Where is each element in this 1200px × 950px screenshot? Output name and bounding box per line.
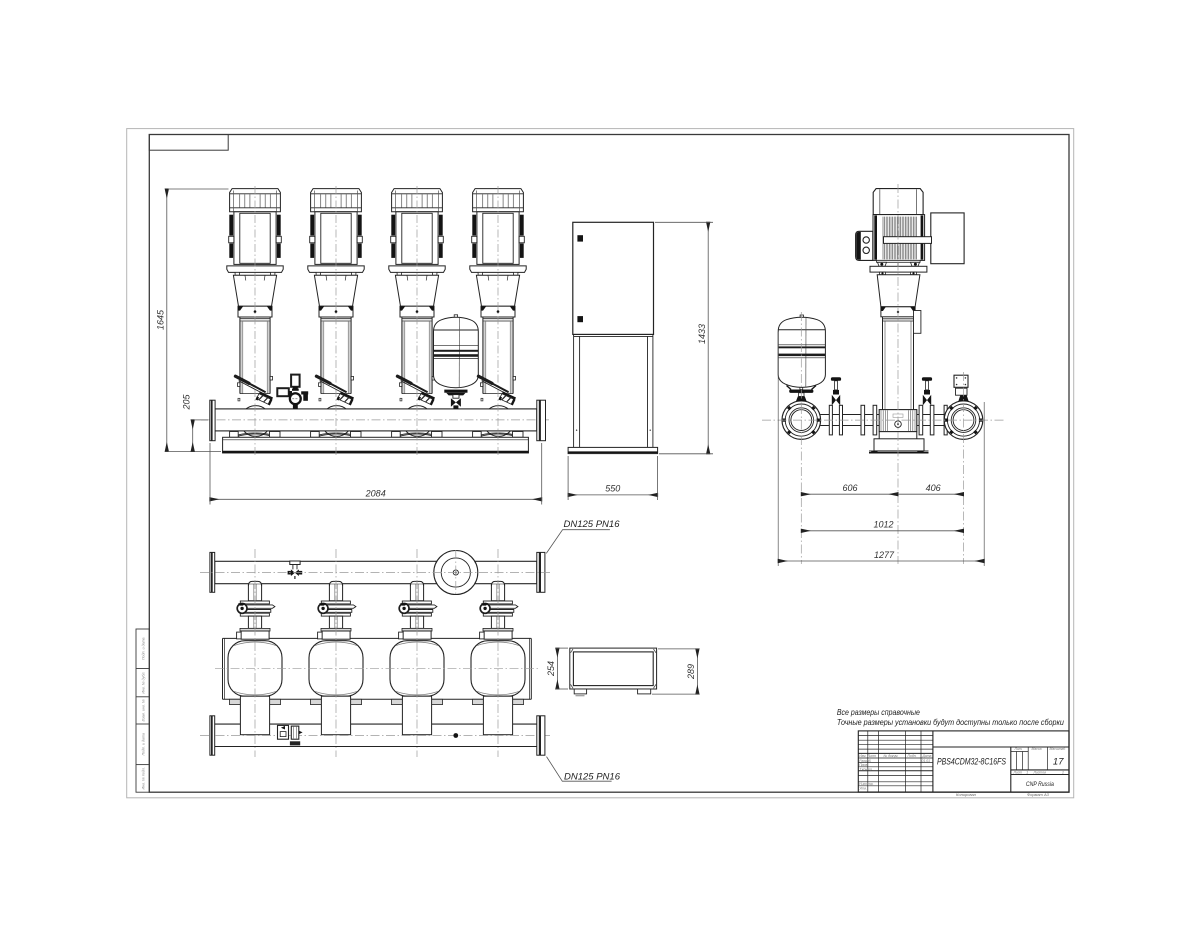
svg-text:Изм. Лист: Изм. Лист	[859, 754, 876, 758]
svg-text:17: 17	[1053, 757, 1064, 768]
svg-text:Утв.: Утв.	[859, 787, 867, 791]
svg-text:№ докум.: № докум.	[884, 754, 899, 758]
svg-text:Масса: Масса	[1032, 747, 1042, 751]
svg-text:Взам. инв. №: Взам. инв. №	[141, 699, 145, 721]
svg-text:DN125 PN16: DN125 PN16	[564, 772, 621, 783]
svg-text:254: 254	[546, 661, 556, 677]
svg-text:Листов: Листов	[1033, 771, 1047, 775]
svg-text:Подп.: Подп.	[908, 754, 917, 758]
svg-text:205: 205	[182, 394, 192, 411]
svg-text:Формат А3: Формат А3	[1027, 792, 1050, 797]
svg-text:1: 1	[1062, 771, 1064, 775]
svg-text:Разраб.: Разраб.	[859, 759, 871, 763]
svg-text:Инв. № подл.: Инв. № подл.	[141, 767, 145, 789]
svg-text:Подп. и дата: Подп. и дата	[141, 637, 145, 660]
svg-text:PBS4CDM32-8C16FS: PBS4CDM32-8C16FS	[937, 756, 1006, 767]
svg-text:01.01: 01.01	[922, 759, 931, 763]
svg-text:1645: 1645	[156, 309, 166, 330]
svg-text:550: 550	[605, 484, 620, 494]
svg-text:Н.контр.: Н.контр.	[859, 782, 873, 786]
svg-text:Точные размеры установки будут: Точные размеры установки будут доступны …	[837, 717, 1064, 727]
svg-text:2084: 2084	[365, 488, 386, 498]
svg-text:Подп. и дата: Подп. и дата	[141, 733, 145, 756]
svg-text:CNP Russia: CNP Russia	[1026, 781, 1054, 788]
svg-text:Дата: Дата	[922, 754, 932, 758]
svg-text:406: 406	[926, 483, 941, 493]
svg-text:289: 289	[686, 664, 696, 680]
svg-text:606: 606	[842, 483, 857, 493]
svg-text:Т.контр.: Т.контр.	[859, 767, 873, 771]
svg-text:1: 1	[1026, 771, 1028, 775]
svg-text:Все размеры справочные: Все размеры справочные	[837, 707, 920, 717]
svg-text:Лит.: Лит.	[1014, 747, 1023, 751]
svg-text:1277: 1277	[874, 550, 895, 560]
svg-text:1012: 1012	[873, 520, 893, 530]
svg-text:1433: 1433	[697, 324, 707, 344]
svg-text:Инв. № дубл.: Инв. № дубл.	[141, 672, 145, 694]
svg-text:Копировал: Копировал	[956, 792, 977, 797]
svg-text:DN125 PN16: DN125 PN16	[564, 519, 621, 530]
svg-text:Лист: Лист	[1013, 771, 1023, 775]
svg-text:Масштаб: Масштаб	[1050, 747, 1066, 751]
